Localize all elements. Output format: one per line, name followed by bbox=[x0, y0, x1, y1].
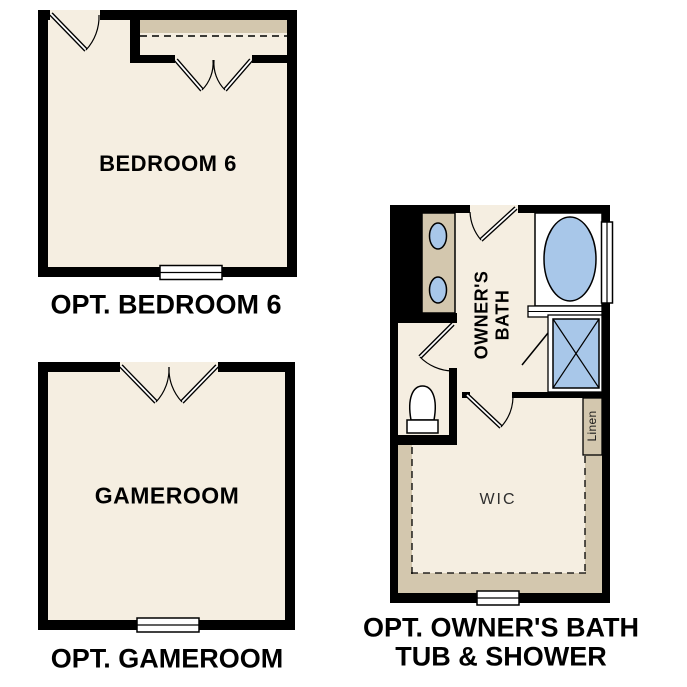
owners-bath-floorplan bbox=[390, 205, 613, 605]
bedroom6-floorplan bbox=[38, 10, 297, 280]
floorplan-canvas: BEDROOM 6 OPT. BEDROOM 6 GAMEROOM OPT. G… bbox=[0, 0, 687, 687]
bedroom6-window bbox=[160, 266, 222, 280]
tub-window bbox=[602, 222, 613, 303]
bedroom6-closet-shelf bbox=[140, 20, 287, 33]
gameroom-caption: OPT. GAMEROOM bbox=[51, 645, 284, 674]
wic-label: WIC bbox=[479, 491, 516, 509]
owners-bath-caption-line1: OPT. OWNER'S BATH bbox=[363, 613, 639, 642]
owners-bath-room-label-line1: OWNER'S bbox=[471, 271, 492, 360]
vanity bbox=[422, 213, 455, 313]
bedroom6-room-label: BEDROOM 6 bbox=[99, 151, 237, 177]
gameroom-window bbox=[137, 618, 199, 632]
toilet bbox=[407, 386, 438, 433]
bedroom6-floor bbox=[38, 10, 297, 277]
owners-bath-room-label: OWNER'S BATH bbox=[471, 271, 512, 360]
linen-label: Linen bbox=[585, 411, 599, 442]
bedroom6-caption: OPT. BEDROOM 6 bbox=[50, 291, 281, 320]
sink-right bbox=[430, 277, 447, 303]
gameroom-room-label: GAMEROOM bbox=[95, 483, 240, 510]
owners-bath-room-label-line2: BATH bbox=[492, 271, 513, 360]
sink-left bbox=[430, 223, 447, 249]
owners-bath-caption-line2: TUB & SHOWER bbox=[363, 642, 639, 671]
owners-bath-caption: OPT. OWNER'S BATH TUB & SHOWER bbox=[363, 613, 639, 670]
bathtub bbox=[535, 213, 602, 306]
floorplan-graphics bbox=[0, 0, 687, 687]
wic-window bbox=[477, 591, 519, 605]
